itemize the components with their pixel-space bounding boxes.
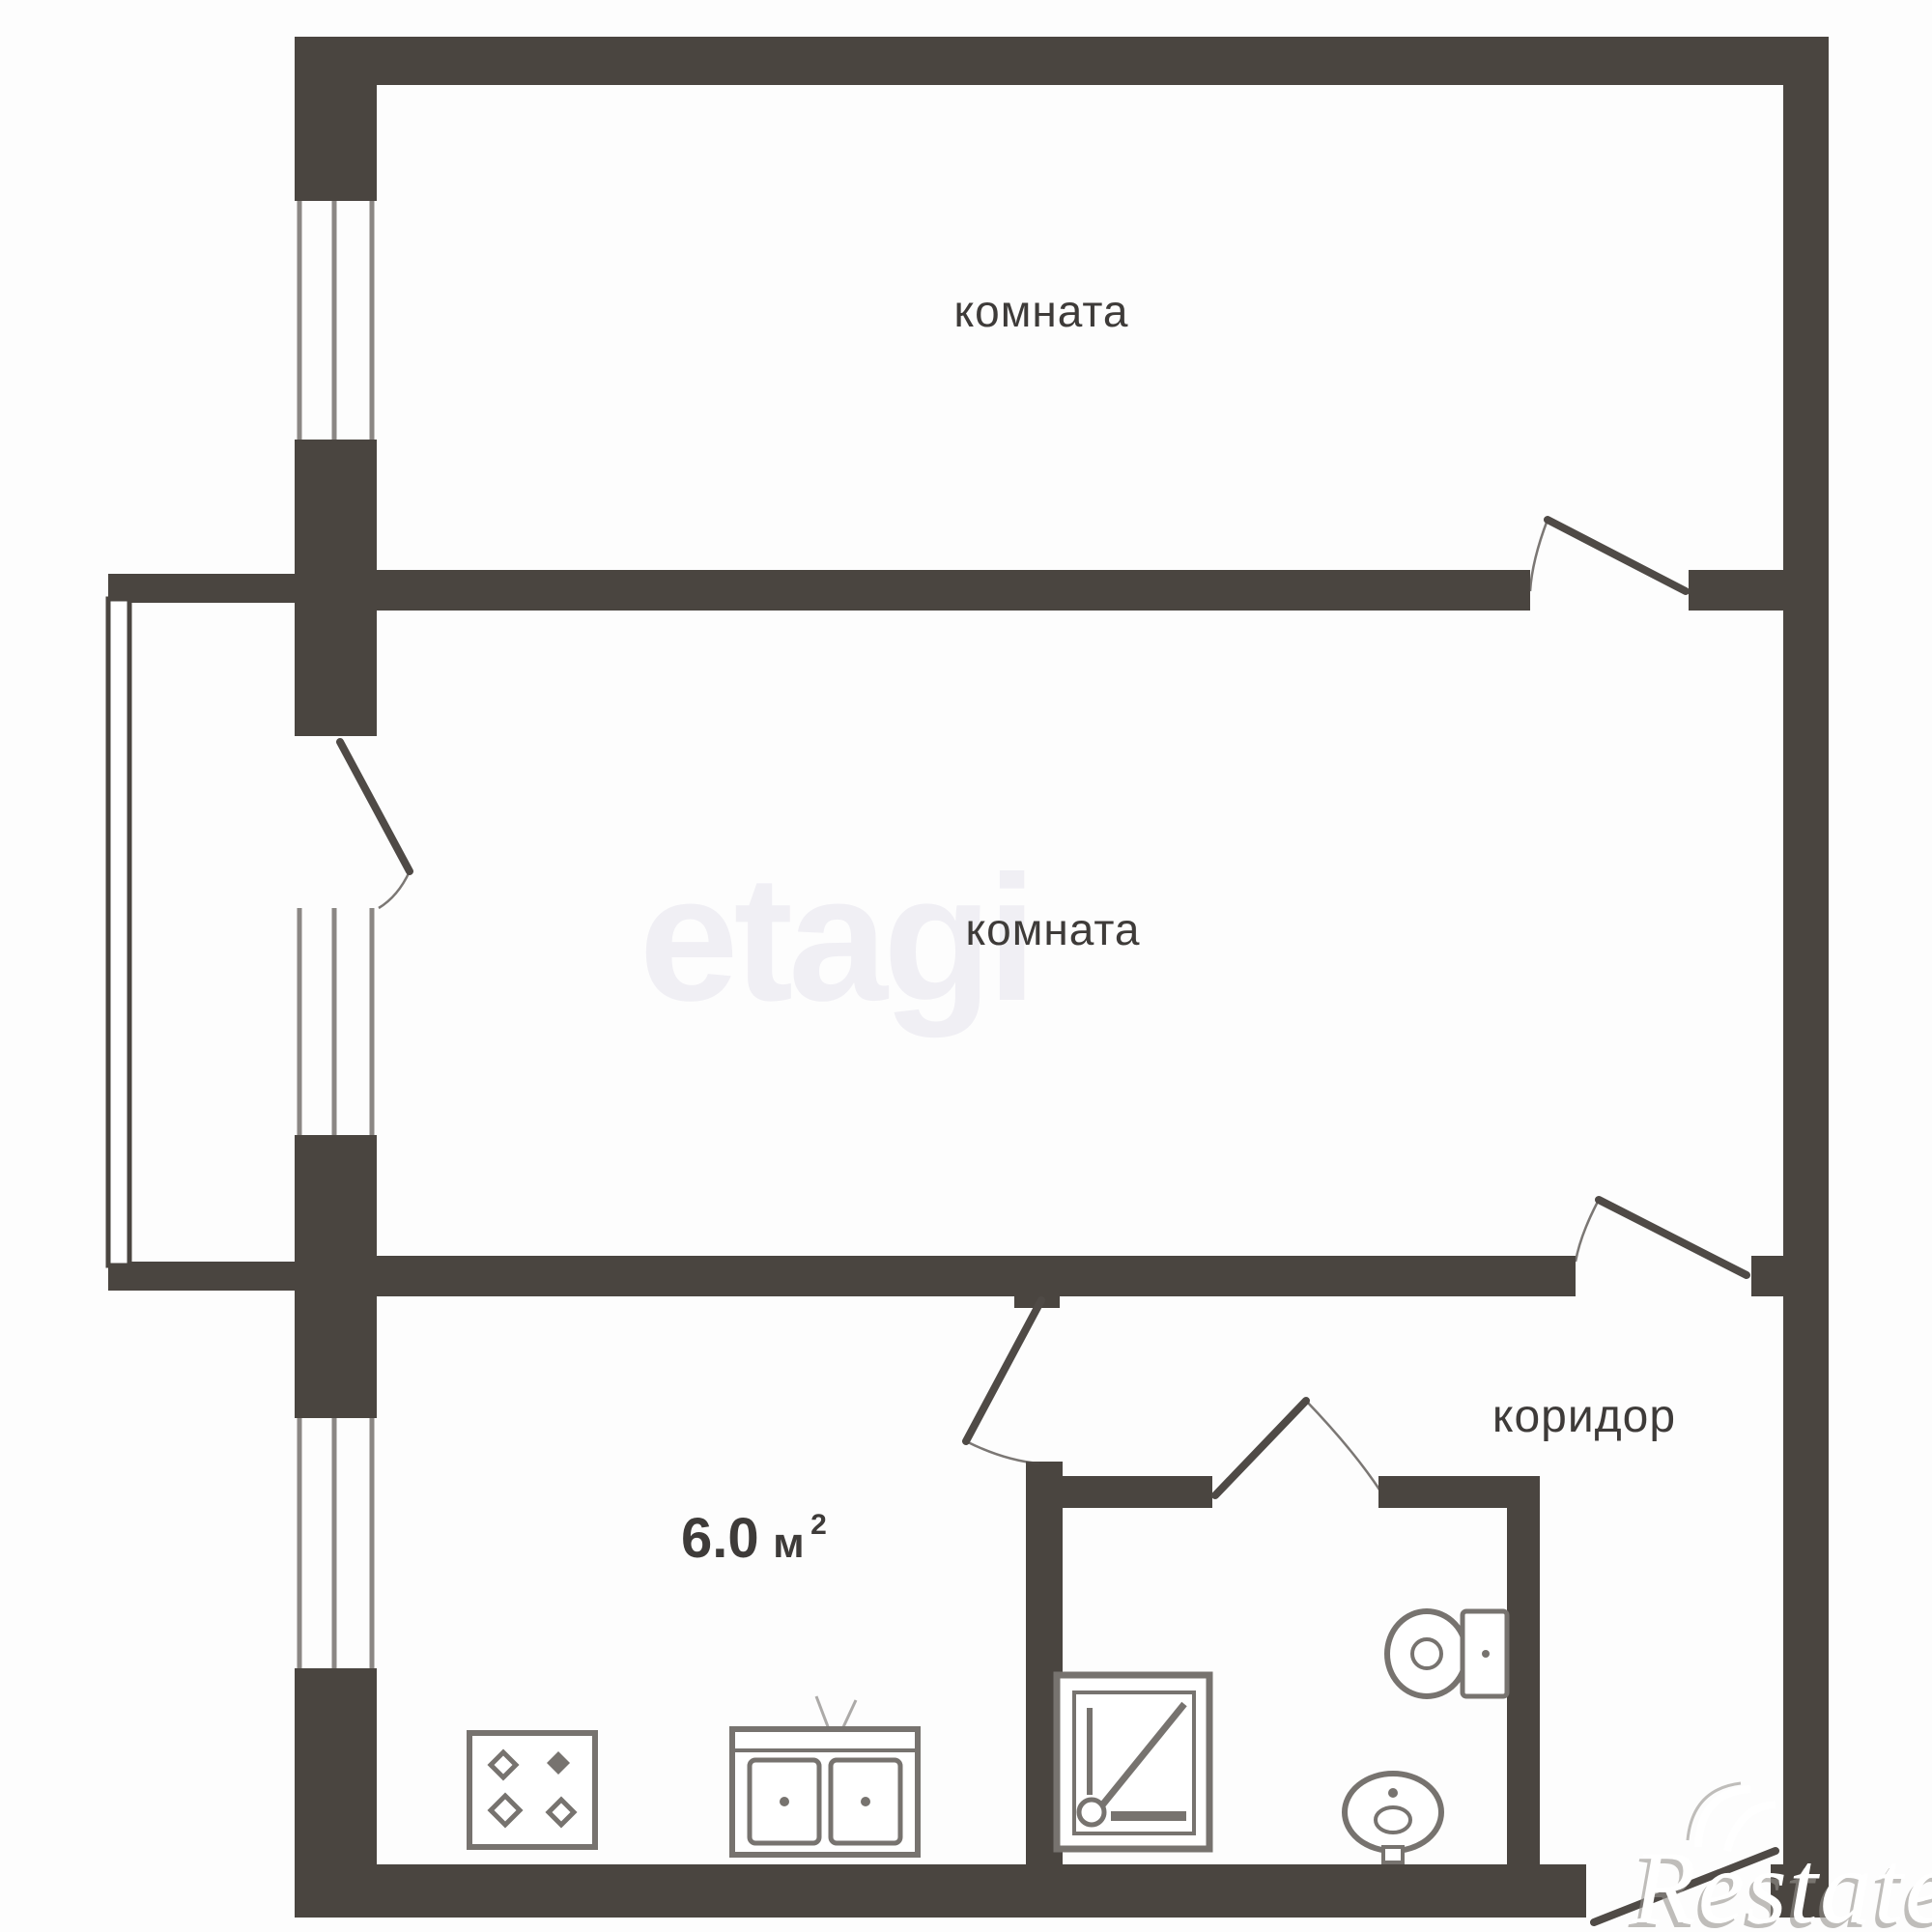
wall-divider2-stub <box>1751 1256 1783 1296</box>
wall-left-segment <box>295 611 377 736</box>
door-kitchen <box>966 1300 1041 1463</box>
toilet-icon <box>1387 1611 1507 1696</box>
wall-top <box>295 37 1829 85</box>
door-top-room <box>1530 520 1686 591</box>
kitchen-area-sup: 2 <box>810 1509 827 1541</box>
label-room-top: комната <box>954 286 1129 336</box>
wall-bathroom-top-left <box>1063 1476 1212 1508</box>
balcony <box>108 574 295 1291</box>
wall-left-segment <box>295 1668 377 1864</box>
door-middle-room <box>1576 1200 1747 1275</box>
window-middle-room <box>299 908 372 1135</box>
wall-left-segment <box>295 37 377 201</box>
label-kitchen-area: 6.0 м 2 <box>681 1507 827 1570</box>
wall-divider1-stub <box>1689 570 1783 611</box>
balcony-railing <box>108 599 129 1265</box>
door-balcony <box>340 742 410 908</box>
label-room-middle: комната <box>966 904 1141 954</box>
floor-plan: etagi Restate Restate комната комната ко… <box>0 0 1932 1932</box>
watermark-restate-text: Restate <box>1632 1831 1932 1932</box>
interior-walls <box>377 570 1783 1864</box>
windows <box>299 201 372 1668</box>
wall-divider1 <box>377 570 1530 611</box>
wall-bathroom-right <box>1507 1508 1540 1864</box>
wall-bathroom-top-right <box>1378 1476 1540 1508</box>
wall-bottom-left-segment <box>295 1864 1586 1918</box>
window-top-room <box>299 201 372 440</box>
kitchen-sink-icon <box>732 1696 918 1855</box>
label-corridor: коридор <box>1492 1391 1676 1442</box>
floor-plan-canvas: etagi Restate Restate комната комната ко… <box>0 0 1932 1932</box>
wall-divider2 <box>377 1256 1576 1296</box>
stove-icon <box>469 1733 595 1847</box>
wash-basin-icon <box>1345 1774 1441 1862</box>
kitchen-area-unit: м <box>773 1520 805 1567</box>
wall-left-segment <box>295 440 377 611</box>
wall-right <box>1783 37 1829 1918</box>
balcony-wall-top <box>108 574 295 603</box>
kitchen-area-value: 6.0 <box>681 1507 759 1570</box>
shower-tray-icon <box>1057 1675 1209 1849</box>
balcony-wall-bottom <box>108 1262 295 1291</box>
watermark-restate: Restate Restate <box>1628 1783 1932 1932</box>
wall-left-segment <box>295 1135 377 1418</box>
window-kitchen <box>299 1418 372 1668</box>
door-bathroom <box>1215 1401 1379 1495</box>
